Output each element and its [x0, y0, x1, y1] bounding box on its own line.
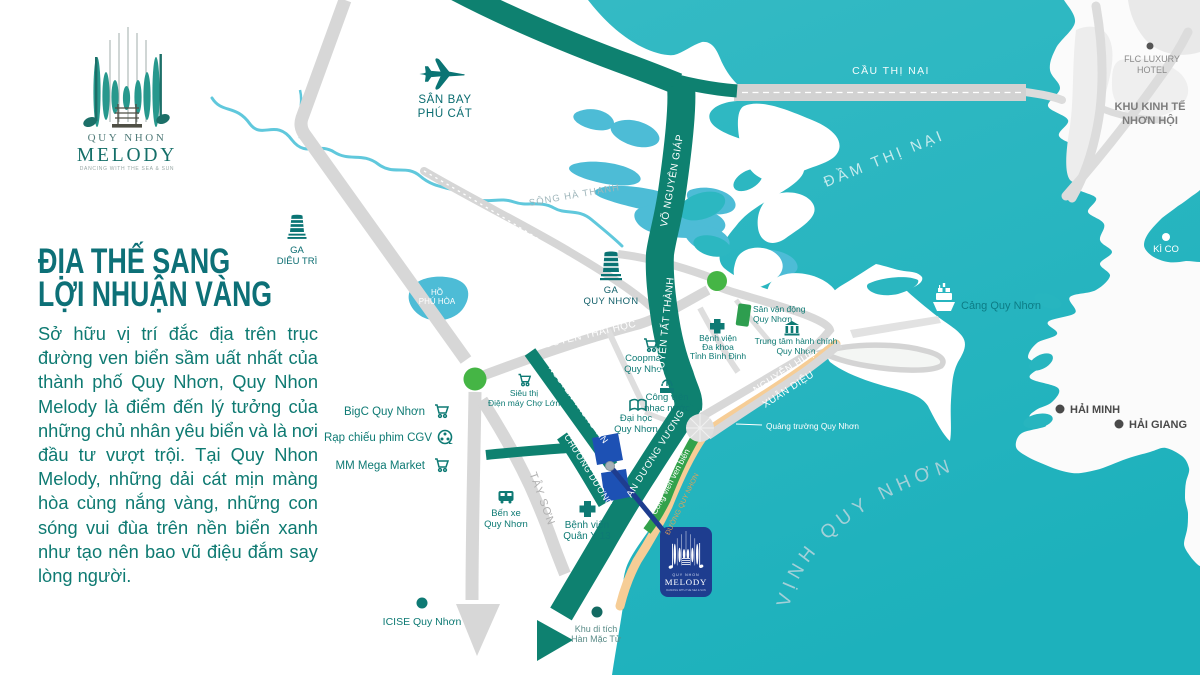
svg-text:Khu di tích: Khu di tích [575, 624, 618, 634]
svg-text:QUY NHƠN: QUY NHƠN [584, 296, 639, 307]
svg-text:CẦU THỊ NẠI: CẦU THỊ NẠI [852, 64, 930, 77]
svg-text:SÂN BAY: SÂN BAY [418, 93, 471, 106]
svg-text:Hàn Mặc Tử: Hàn Mặc Tử [571, 634, 621, 644]
svg-text:Quy Nhơn: Quy Nhơn [753, 314, 792, 324]
svg-text:PHÚ HÒA: PHÚ HÒA [419, 297, 456, 306]
svg-text:HOTEL: HOTEL [1137, 65, 1167, 75]
svg-text:NHƠN HỘI: NHƠN HỘI [1122, 114, 1178, 127]
svg-text:KÌ CO: KÌ CO [1153, 244, 1179, 255]
svg-text:Tỉnh Bình Định: Tỉnh Bình Định [690, 351, 746, 361]
svg-text:MELODY: MELODY [665, 577, 707, 587]
svg-text:KHU KINH TẾ: KHU KINH TẾ [1115, 100, 1186, 113]
svg-text:MELODY: MELODY [77, 145, 177, 166]
svg-text:GA: GA [604, 285, 619, 296]
svg-text:DANCING WITH THE SEA & SUN: DANCING WITH THE SEA & SUN [666, 588, 706, 592]
svg-text:Quân Y 13: Quân Y 13 [563, 531, 611, 542]
svg-text:HẢI MINH: HẢI MINH [1070, 403, 1120, 416]
svg-text:MM Mega Market: MM Mega Market [336, 460, 426, 472]
svg-text:HẢI GIANG: HẢI GIANG [1129, 418, 1187, 431]
svg-text:Bến xe: Bến xe [491, 508, 521, 519]
svg-text:Quảng trường Quy Nhơn: Quảng trường Quy Nhơn [766, 421, 859, 431]
svg-text:DANCING WITH THE SEA & SUN: DANCING WITH THE SEA & SUN [80, 166, 175, 172]
svg-text:Công viên: Công viên [646, 392, 689, 403]
svg-text:Điện máy Chợ Lớn: Điện máy Chợ Lớn [488, 398, 560, 408]
svg-text:HỒ: HỒ [431, 287, 443, 297]
svg-text:Quy Nhơn: Quy Nhơn [484, 519, 528, 530]
svg-text:PHÚ CÁT: PHÚ CÁT [418, 107, 473, 120]
svg-text:QUY NHON: QUY NHON [88, 132, 167, 144]
svg-text:Bệnh viện: Bệnh viện [565, 520, 609, 531]
svg-text:Rạp chiếu phim CGV: Rạp chiếu phim CGV [324, 432, 432, 444]
svg-text:FLC LUXURY: FLC LUXURY [1124, 54, 1180, 64]
svg-text:Trung tâm hành chính: Trung tâm hành chính [755, 336, 838, 346]
svg-text:BigC Quy Nhơn: BigC Quy Nhơn [344, 406, 425, 418]
svg-text:Siêu thị: Siêu thị [510, 388, 538, 398]
svg-text:Cảng Quy Nhơn: Cảng Quy Nhơn [961, 300, 1041, 312]
svg-text:Sân vận động: Sân vận động [753, 304, 806, 314]
svg-text:Quy Nhơn: Quy Nhơn [614, 424, 658, 435]
svg-text:ICISE Quy Nhơn: ICISE Quy Nhơn [383, 616, 462, 628]
svg-text:Đại học: Đại học [620, 413, 652, 424]
